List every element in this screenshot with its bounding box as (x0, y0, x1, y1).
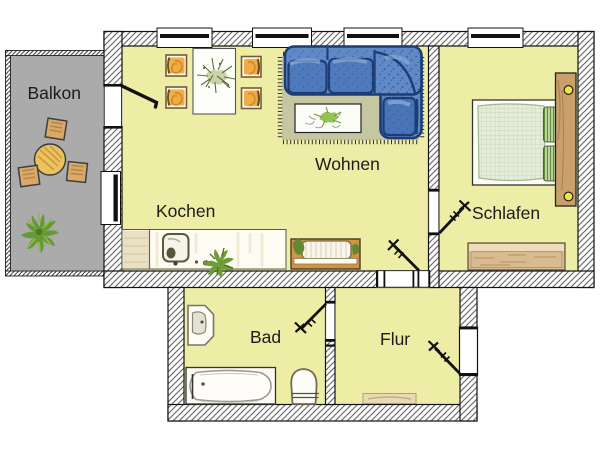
svg-text:Flur: Flur (380, 329, 410, 349)
svg-text:Wohnen: Wohnen (315, 154, 380, 174)
svg-text:Schlafen: Schlafen (472, 203, 540, 223)
svg-text:Kochen: Kochen (156, 201, 215, 221)
svg-text:Balkon: Balkon (28, 83, 82, 103)
svg-text:Bad: Bad (250, 327, 281, 347)
